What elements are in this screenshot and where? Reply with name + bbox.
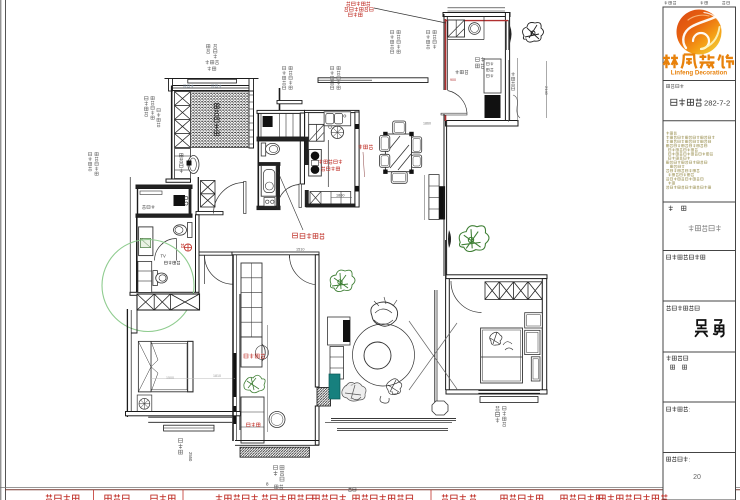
svg-text:20: 20 [693, 474, 701, 481]
svg-text:1860: 1860 [423, 122, 431, 126]
svg-text:TV: TV [161, 254, 167, 259]
svg-text:900: 900 [450, 78, 456, 82]
svg-text:1810: 1810 [213, 374, 221, 378]
svg-text:2140: 2140 [544, 86, 549, 96]
svg-text:Linfeng Decoration: Linfeng Decoration [671, 70, 728, 77]
svg-text:2550: 2550 [188, 452, 193, 462]
svg-text:1500: 1500 [166, 376, 174, 380]
svg-text:1510: 1510 [296, 248, 304, 252]
svg-text:282-7-2: 282-7-2 [704, 99, 730, 108]
svg-text:1860: 1860 [336, 194, 344, 198]
svg-text::: : [689, 408, 690, 414]
svg-text::: : [689, 458, 690, 464]
